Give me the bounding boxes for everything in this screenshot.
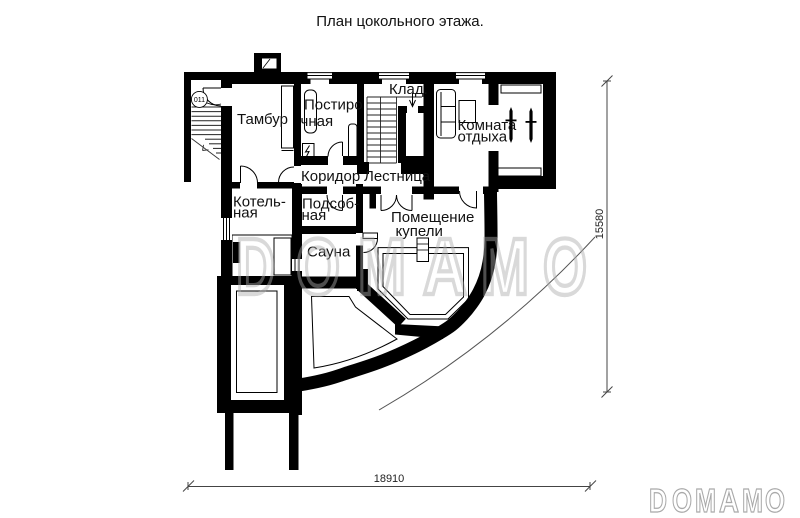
svg-text:M: M xyxy=(742,482,763,518)
svg-text:чная: чная xyxy=(301,113,334,130)
svg-text:18910: 18910 xyxy=(374,473,405,485)
svg-text:D: D xyxy=(649,482,667,518)
svg-text:План цокольного этажа.: План цокольного этажа. xyxy=(316,13,484,30)
svg-text:Тамбур: Тамбур xyxy=(237,111,288,128)
svg-text:A: A xyxy=(423,222,467,311)
svg-text:A: A xyxy=(719,482,739,518)
svg-text:O: O xyxy=(672,482,692,518)
svg-text:D: D xyxy=(236,222,275,311)
svg-text:O: O xyxy=(543,222,587,311)
svg-text:Лестница: Лестница xyxy=(364,168,431,185)
svg-text:O: O xyxy=(765,482,785,518)
svg-text:Коридор: Коридор xyxy=(301,168,360,185)
svg-text:M: M xyxy=(358,222,406,311)
svg-text:отдыха: отдыха xyxy=(458,129,508,146)
svg-text:M: M xyxy=(695,482,716,518)
svg-text:ная: ная xyxy=(233,205,258,222)
svg-text:O: O xyxy=(296,222,340,311)
svg-text:15580: 15580 xyxy=(594,209,606,240)
svg-text:Клад.: Клад. xyxy=(389,81,428,98)
svg-text:011: 011 xyxy=(194,97,205,104)
svg-text:M: M xyxy=(481,222,529,311)
svg-text:Постиро: Постиро xyxy=(304,97,363,114)
